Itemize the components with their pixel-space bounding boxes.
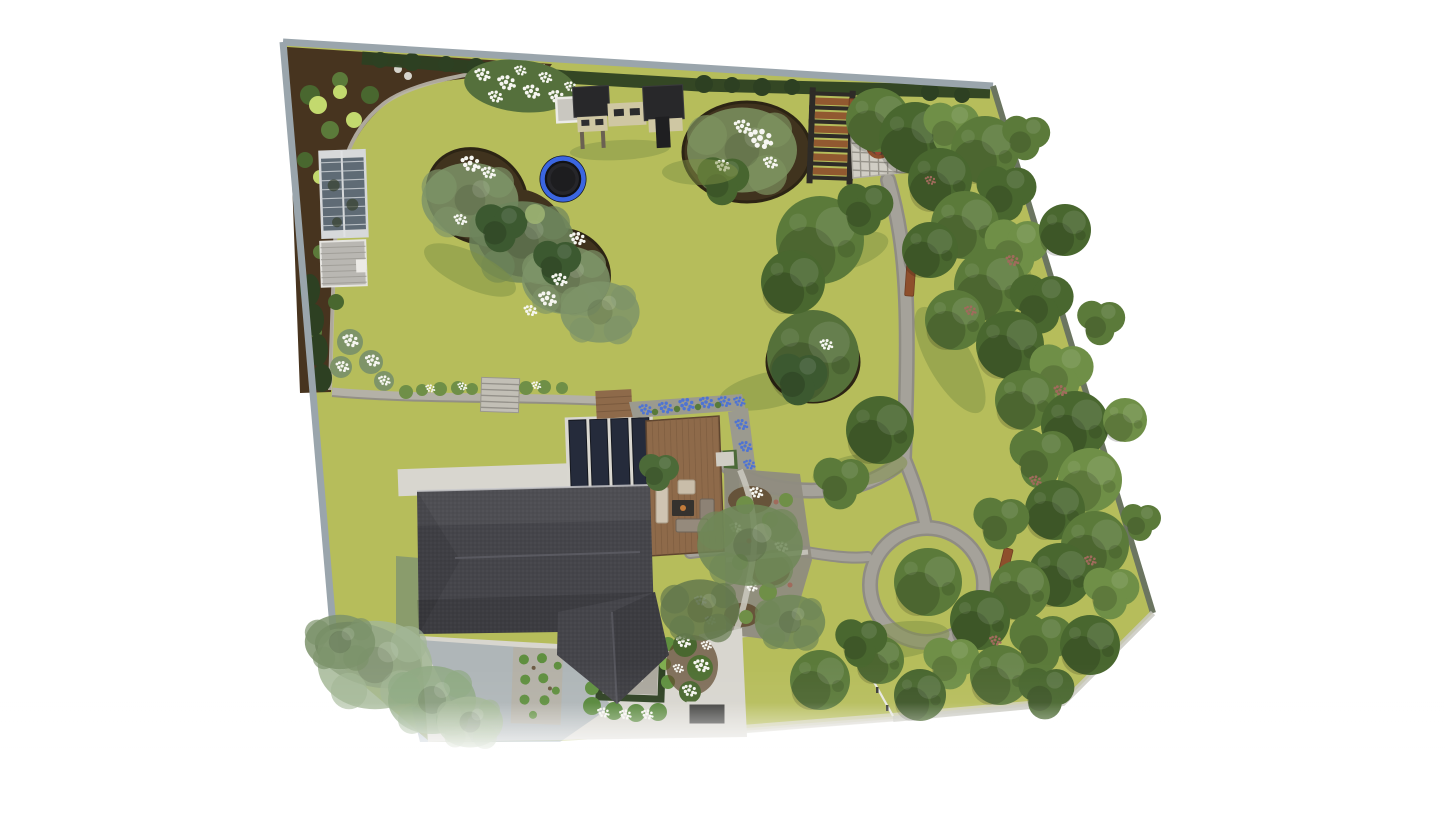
greenhouse xyxy=(320,150,368,238)
sage-tree xyxy=(660,579,739,642)
playhouse-slide xyxy=(655,116,671,148)
render-fade xyxy=(0,640,1445,813)
tree xyxy=(894,548,962,616)
tree xyxy=(846,396,914,464)
garden-shed xyxy=(320,240,367,287)
roof-panels xyxy=(565,414,656,493)
deck-walkway xyxy=(595,389,632,419)
playhouse-right-roof xyxy=(643,85,685,121)
trampoline xyxy=(540,156,587,203)
sage-tree xyxy=(697,504,803,588)
garden-steps xyxy=(480,377,519,412)
tree xyxy=(761,250,825,314)
stepping-stone xyxy=(404,72,412,80)
playhouse-left-roof xyxy=(572,86,610,118)
ornamental-tree-bed-centre xyxy=(767,310,859,405)
shed-door xyxy=(356,259,366,272)
garden-plan-stage xyxy=(0,0,1445,813)
deck-steps xyxy=(716,452,735,467)
sage-tree xyxy=(560,281,639,344)
garden-plan-svg xyxy=(0,0,1445,813)
playhouse-bridge xyxy=(607,102,646,127)
